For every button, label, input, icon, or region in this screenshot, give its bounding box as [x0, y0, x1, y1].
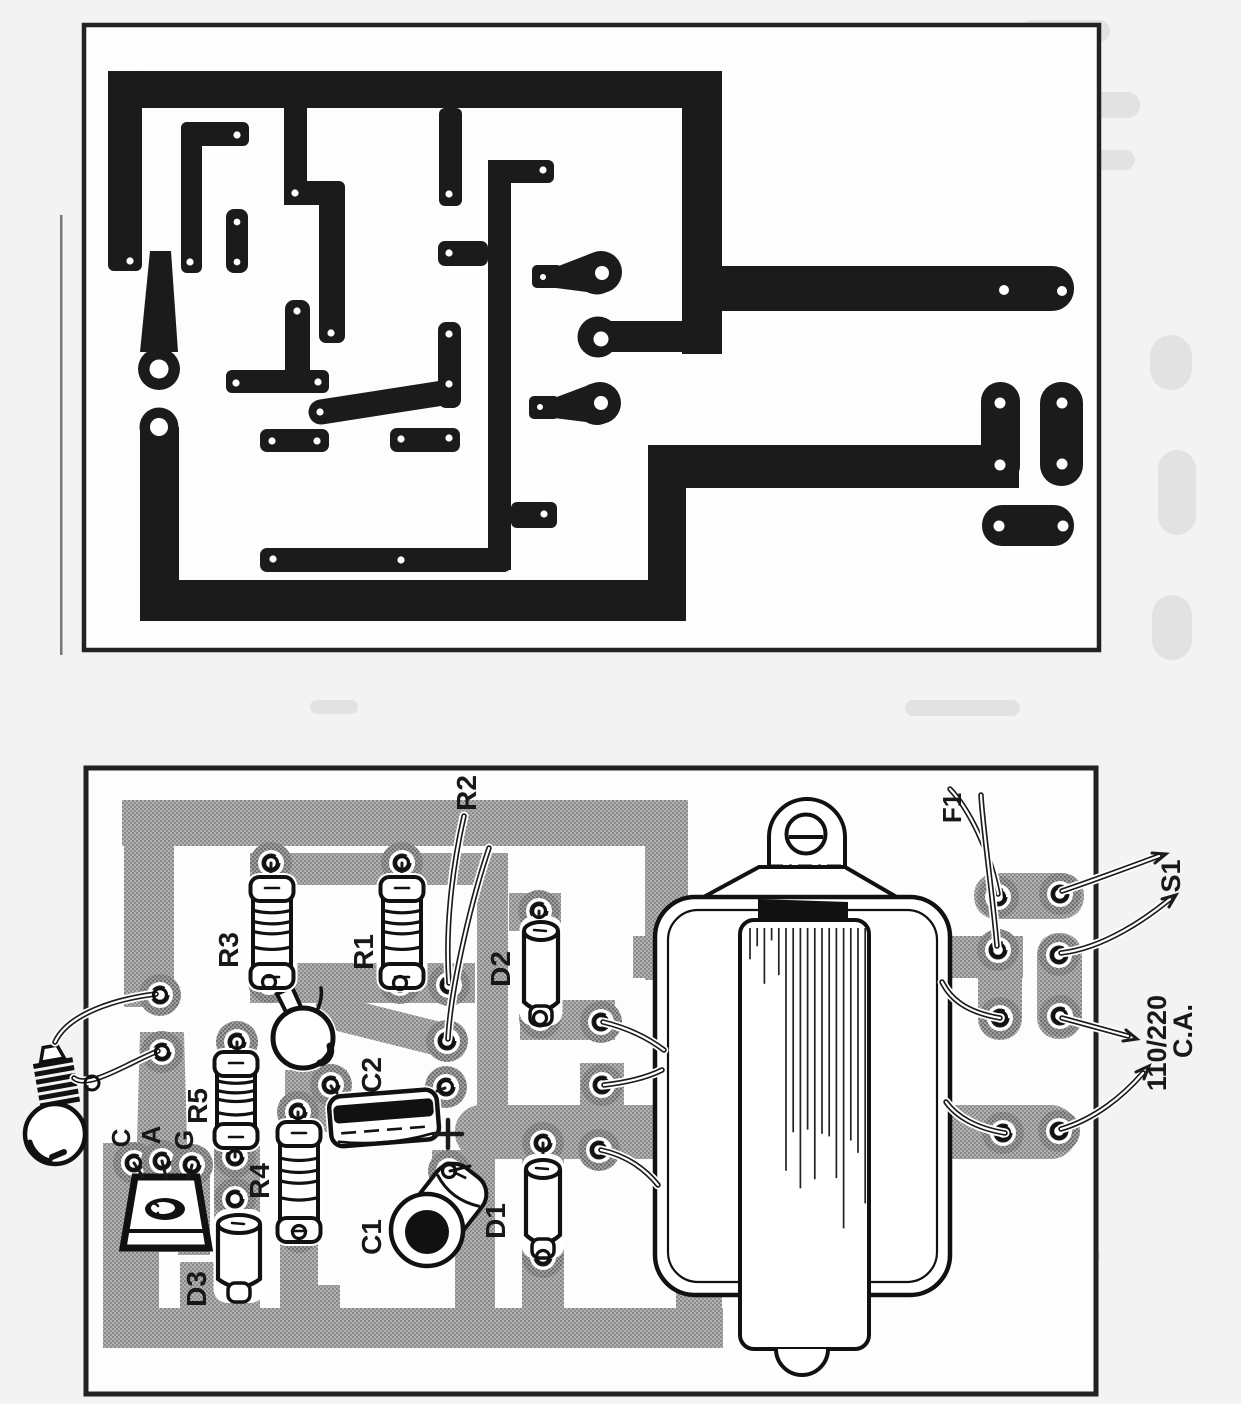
svg-text:R1: R1 — [348, 934, 379, 970]
svg-text:D1: D1 — [480, 1203, 511, 1239]
svg-text:C.A.: C.A. — [1168, 1004, 1198, 1058]
svg-text:D3: D3 — [181, 1271, 212, 1307]
svg-text:F1: F1 — [937, 793, 967, 823]
svg-text:C1: C1 — [356, 1219, 387, 1255]
svg-text:G: G — [169, 1130, 199, 1150]
svg-text:A: A — [136, 1125, 166, 1144]
svg-text:R4: R4 — [244, 1163, 275, 1199]
svg-text:R5: R5 — [182, 1088, 213, 1124]
svg-text:S1: S1 — [1156, 859, 1186, 892]
svg-text:C: C — [106, 1128, 136, 1147]
svg-text:C2: C2 — [356, 1057, 387, 1093]
svg-text:R2: R2 — [451, 775, 482, 811]
svg-text:R3: R3 — [213, 932, 244, 968]
svg-text:D2: D2 — [485, 951, 516, 987]
